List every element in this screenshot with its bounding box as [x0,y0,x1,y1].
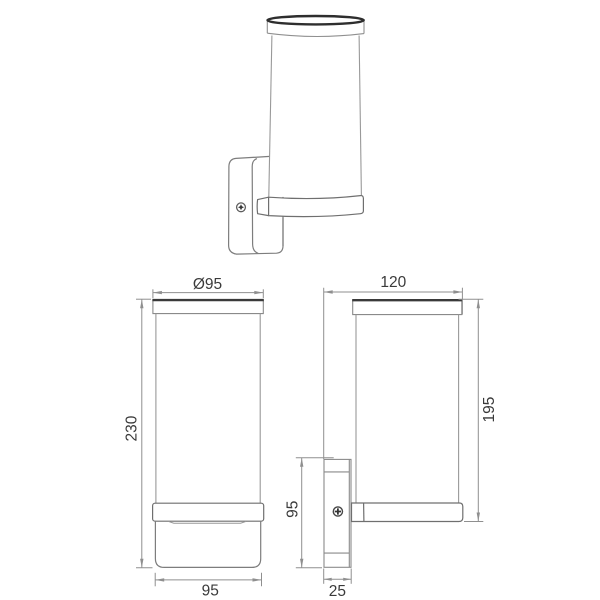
svg-text:120: 120 [380,274,406,291]
svg-text:25: 25 [329,583,346,600]
svg-text:95: 95 [202,583,219,600]
svg-text:95: 95 [284,501,301,518]
svg-text:Ø95: Ø95 [193,276,222,293]
svg-text:195: 195 [481,397,498,423]
svg-text:230: 230 [124,415,141,441]
